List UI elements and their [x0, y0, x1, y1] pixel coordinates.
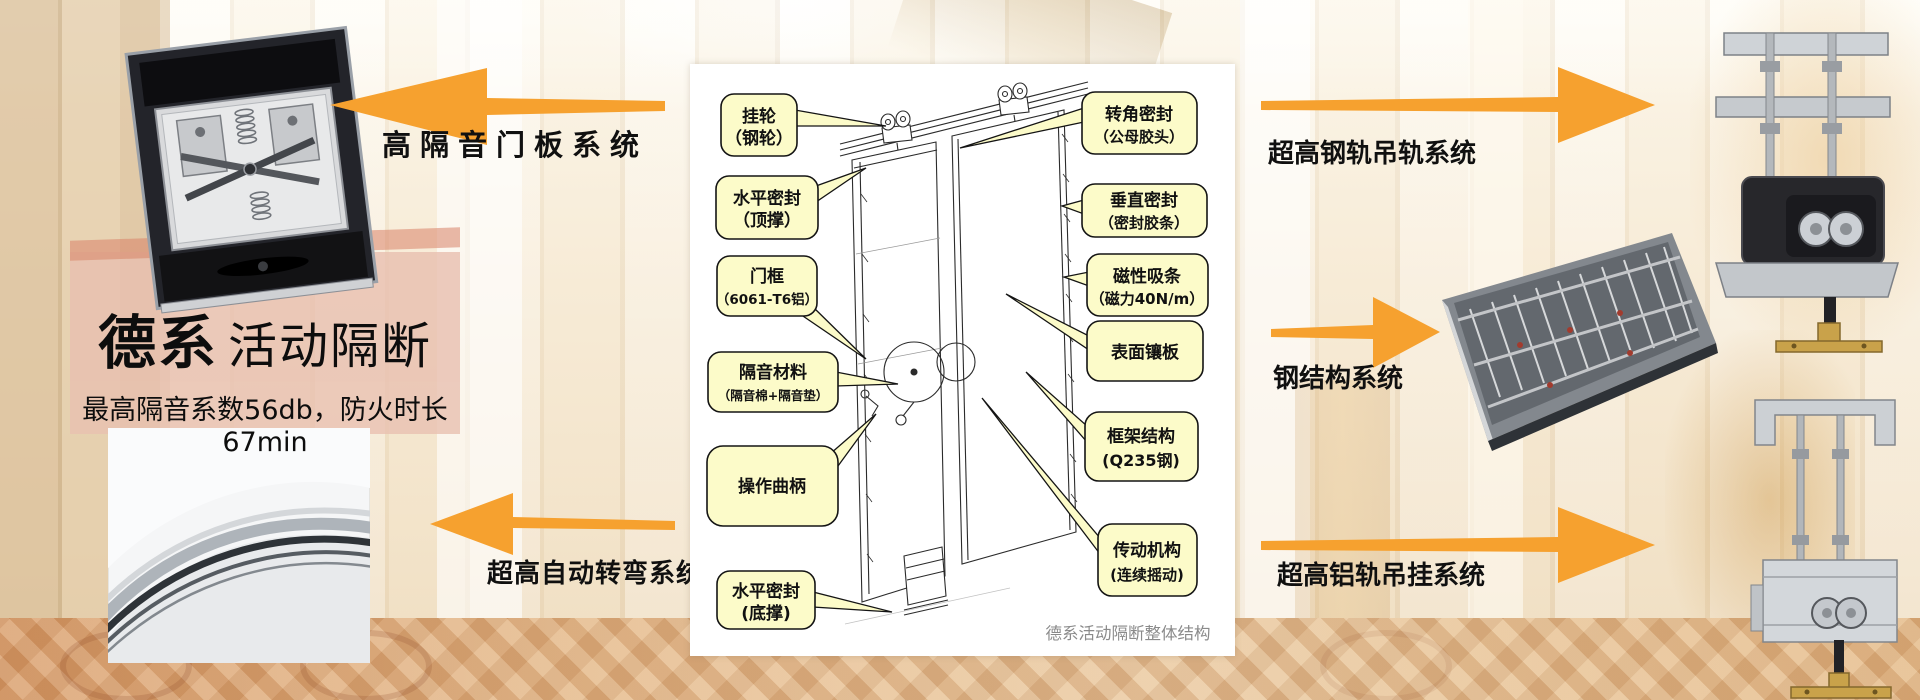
- steel-structure-photo: [1430, 225, 1722, 470]
- callout-text: (Q235钢): [1102, 451, 1180, 470]
- arrow-left-icon: [425, 487, 680, 559]
- callout-text: 水平密封: [732, 581, 800, 602]
- callout-text: 转角密封: [1105, 104, 1173, 125]
- label-door-panel-system: 高隔音门板系统: [382, 122, 648, 164]
- callout-text: (连续摇动): [1110, 566, 1184, 584]
- poster-canvas: 德系活动隔断 最高隔音系数56db，防火时长67min 高隔音门板系统 超高自动…: [0, 0, 1920, 700]
- product-title: 活动隔断: [228, 318, 432, 375]
- label-steel-rail-system: 超高钢轨吊轨系统: [1268, 133, 1476, 170]
- callout-text: （6061-T6铝）: [716, 291, 818, 308]
- callout-text: 框架结构: [1107, 426, 1175, 447]
- structure-diagram-panel: 挂轮 （钢轮） 水平密封 （顶撑） 门框 （6061-T6铝） 隔音材料 （隔音…: [690, 64, 1235, 656]
- callout-text: 门框: [750, 266, 784, 287]
- callout-text: （密封胶条）: [1099, 214, 1189, 232]
- callout-text: 隔音材料: [739, 362, 807, 383]
- callout-text: （钢轮）: [725, 128, 793, 149]
- callout-text: （隔音棉+隔音垫）: [718, 388, 828, 403]
- callout-text: （磁力40N/m）: [1090, 290, 1205, 308]
- callout-text: （顶撑）: [733, 210, 801, 231]
- alu-rail-hanging-photo: [1735, 385, 1920, 700]
- callout-text: 垂直密封: [1110, 190, 1178, 211]
- headline-subtitle: 最高隔音系数56db，防火时长67min: [40, 388, 490, 458]
- steel-rail-carrier-photo: [1698, 5, 1920, 355]
- label-auto-turn-system: 超高自动转弯系统: [487, 553, 703, 590]
- brand-title: 德系: [98, 309, 218, 377]
- callout-text: 挂轮: [742, 106, 776, 127]
- callout-text: 磁性吸条: [1113, 266, 1182, 287]
- callout-text: 水平密封: [733, 188, 801, 209]
- diagram-caption: 德系活动隔断整体结构: [1046, 624, 1211, 643]
- partition-structure-drawing: 挂轮 （钢轮） 水平密封 （顶撑） 门框 （6061-T6铝） 隔音材料 （隔音…: [690, 64, 1235, 656]
- headline-block: 德系活动隔断 最高隔音系数56db，防火时长67min: [40, 296, 490, 458]
- callout-text: 表面镶板: [1111, 342, 1180, 363]
- carpet-medallion: [1320, 630, 1452, 700]
- label-steel-structure-system: 钢结构系统: [1273, 358, 1403, 395]
- callout-text: （公母胶头）: [1094, 128, 1184, 146]
- callout-text: 操作曲柄: [738, 476, 806, 497]
- callout-text: 传动机构: [1112, 540, 1181, 561]
- callout-text: (底撑): [741, 603, 791, 624]
- curved-track-photo: [108, 428, 370, 663]
- label-alu-rail-system: 超高铝轨吊挂系统: [1277, 555, 1485, 592]
